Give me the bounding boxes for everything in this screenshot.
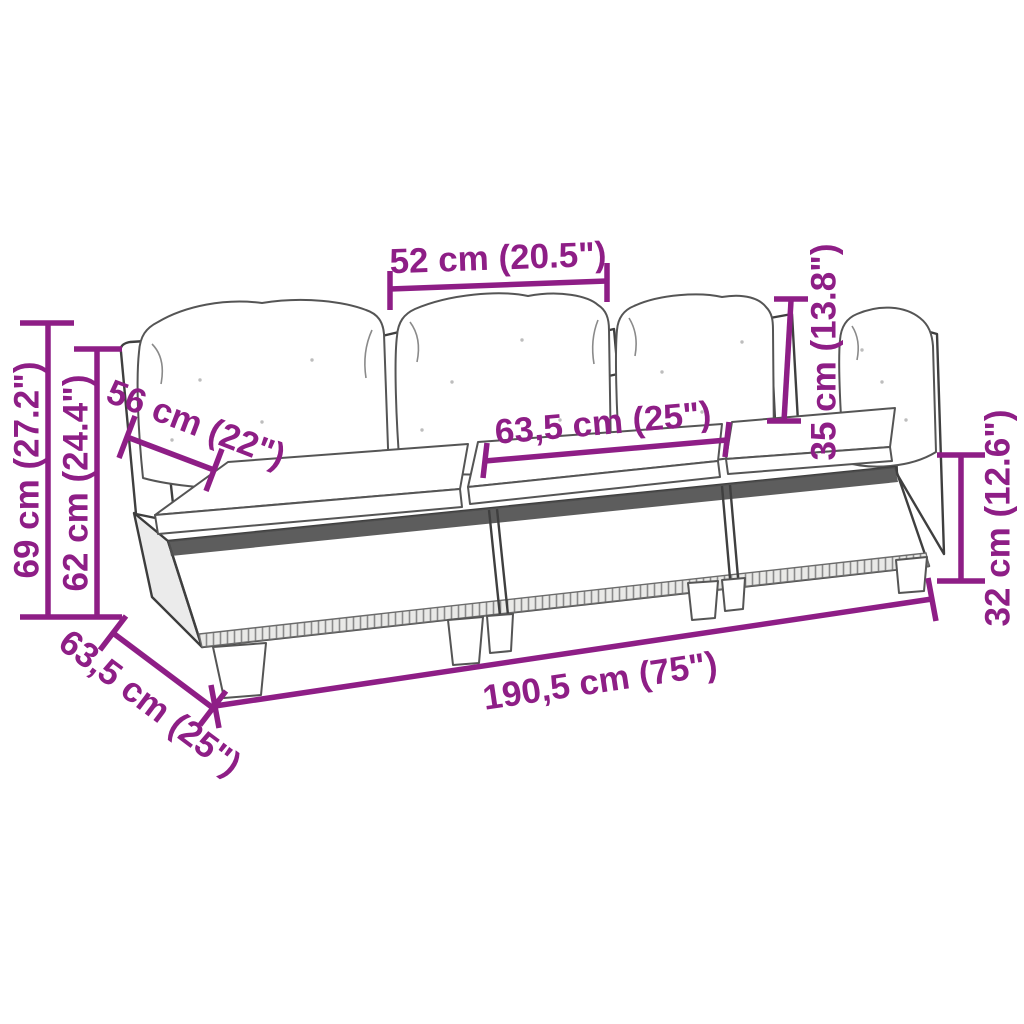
dim-seat-height: 32 cm (12.6")	[937, 410, 1018, 627]
leg-mid-right-b	[722, 578, 745, 611]
leg-front-left	[213, 643, 266, 698]
leg-front-right	[896, 557, 927, 593]
base-bottom-rail	[199, 553, 929, 647]
dim-frame-height-label: 62 cm (24.4")	[57, 375, 96, 592]
leg-mid-right-a	[688, 581, 718, 620]
dim-back-section-width-label: 52 cm (20.5")	[389, 235, 607, 282]
sofa-dimension-diagram: 52 cm (20.5") 69 cm (27.2") 62 cm (24.4"…	[0, 0, 1024, 1024]
leg-mid-left-a	[448, 617, 483, 665]
dim-seat-height-label: 32 cm (12.6")	[979, 410, 1018, 627]
dim-total-width-label: 190,5 cm (75")	[480, 644, 720, 718]
dim-backrest-height-label: 35 cm (13.8")	[805, 244, 844, 461]
dim-total-height-label: 69 cm (27.2")	[8, 362, 47, 579]
product-dimension-image: 52 cm (20.5") 69 cm (27.2") 62 cm (24.4"…	[0, 0, 1024, 1024]
leg-mid-left-b	[487, 614, 513, 653]
